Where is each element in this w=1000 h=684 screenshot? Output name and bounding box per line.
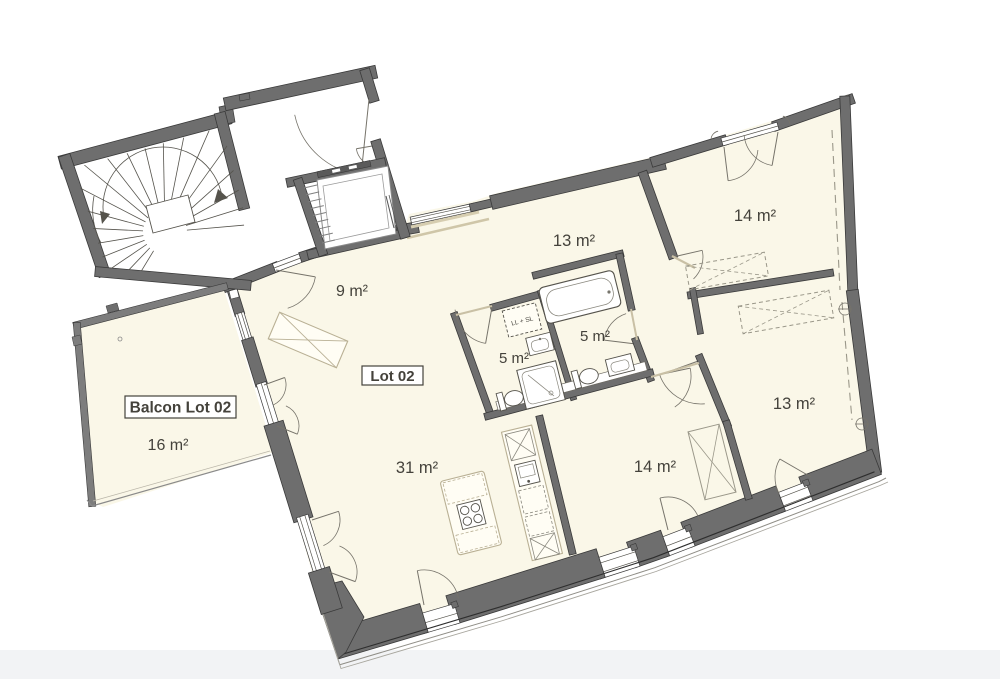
svg-text:31 m²: 31 m²	[396, 459, 439, 477]
svg-text:13 m²: 13 m²	[773, 395, 816, 413]
svg-text:Lot 02: Lot 02	[370, 368, 414, 385]
svg-text:5 m²: 5 m²	[499, 350, 529, 367]
svg-text:14 m²: 14 m²	[634, 458, 677, 476]
svg-text:13 m²: 13 m²	[553, 232, 596, 250]
svg-text:9 m²: 9 m²	[336, 283, 369, 300]
svg-text:16 m²: 16 m²	[148, 437, 190, 454]
svg-text:Balcon Lot 02: Balcon Lot 02	[130, 400, 232, 417]
svg-text:5 m²: 5 m²	[580, 328, 610, 345]
svg-text:14 m²: 14 m²	[734, 207, 777, 225]
